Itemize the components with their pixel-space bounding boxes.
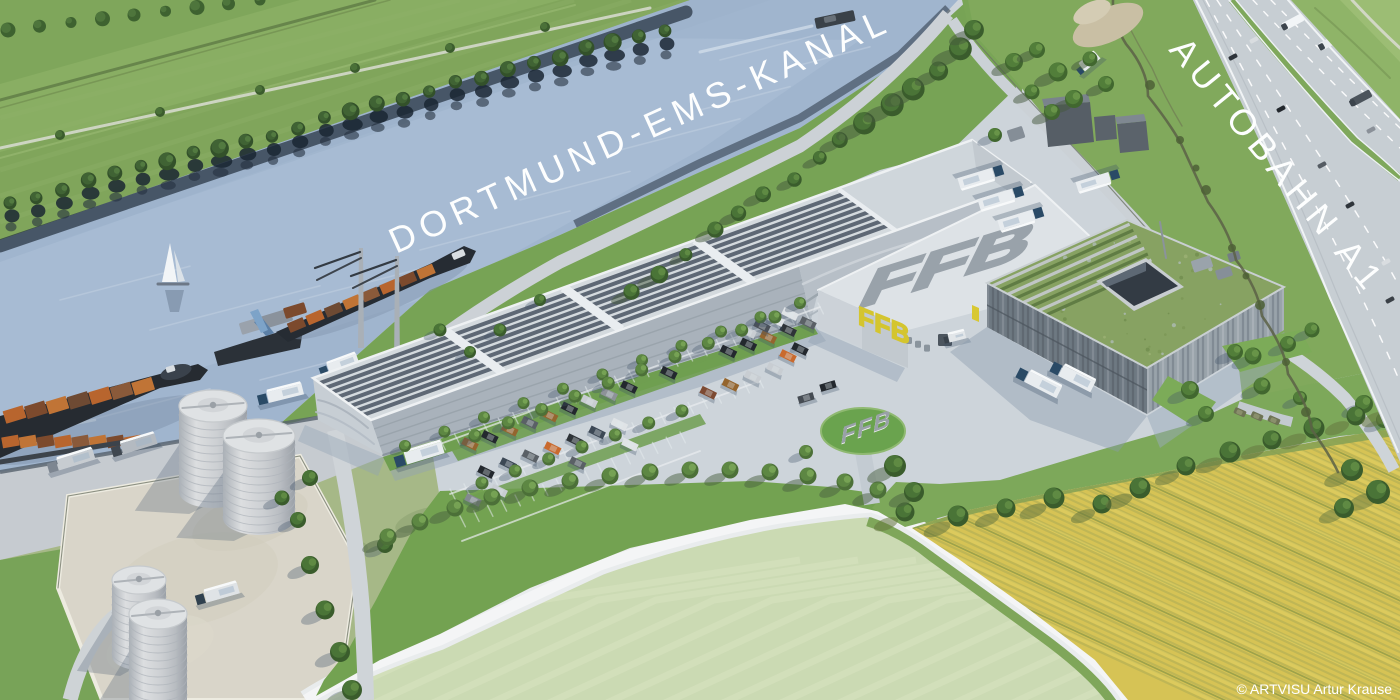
svg-text:© ARTVISU Artur Krause: © ARTVISU Artur Krause	[1236, 681, 1392, 697]
